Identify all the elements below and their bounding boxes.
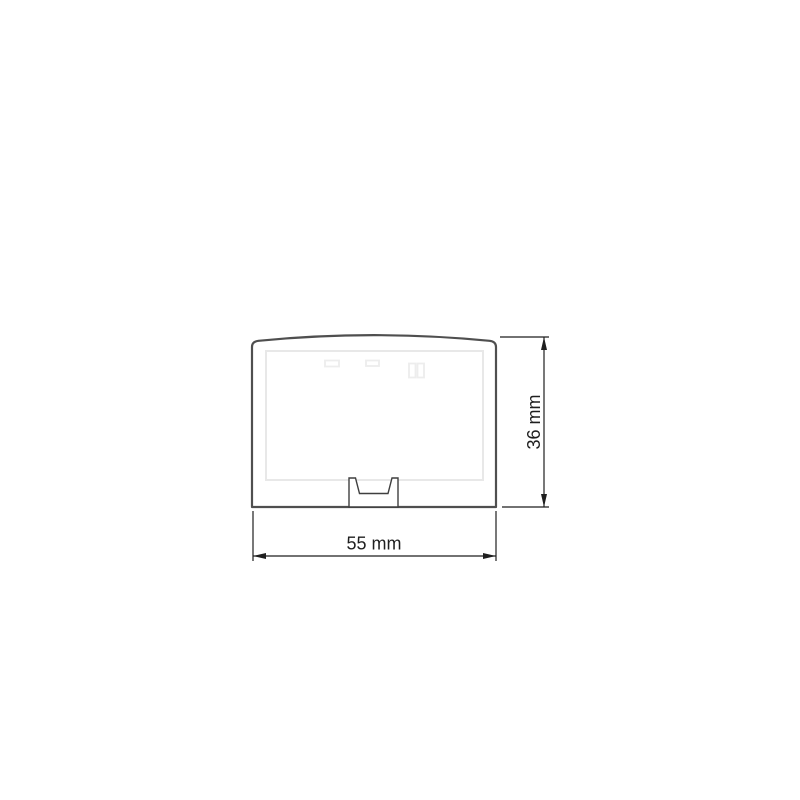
width-arrowhead-left [253,553,266,559]
width-dimension-label: 55 mm [346,534,401,554]
dimension-drawing: 55 mm 36 mm [0,0,800,800]
top-slot-right [366,361,379,367]
width-dimension: 55 mm [253,511,496,561]
height-dimension: 36 mm [500,337,549,507]
top-slot-left [325,361,339,367]
device-front-view [252,335,496,507]
technical-drawing-page: 55 mm 36 mm [0,0,800,800]
vertical-slot-left [409,364,416,378]
width-arrowhead-right [483,553,496,559]
height-arrowhead-bottom [541,494,547,507]
height-dimension-label: 36 mm [524,394,544,449]
height-arrowhead-top [541,337,547,350]
vertical-slot-right [418,364,425,378]
